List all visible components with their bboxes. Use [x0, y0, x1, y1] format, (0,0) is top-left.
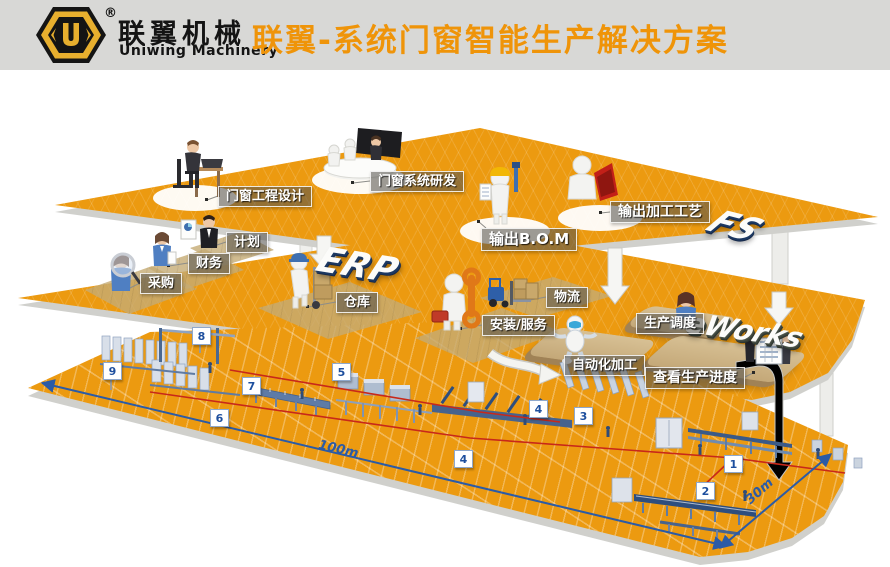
tag-installation-service: 安装/服务 [482, 315, 555, 336]
tag-window-system-rd: 门窗系统研发 [370, 171, 464, 192]
marker-4b: 4 [454, 450, 473, 468]
tag-planning: 计划 [226, 232, 268, 253]
marker-3: 3 [574, 407, 593, 425]
machine-cluster-machining-center [656, 412, 792, 458]
tag-output-bom: 输出B.O.M [481, 228, 577, 251]
registered-mark: ® [104, 6, 117, 21]
service-to-automation-arrow [490, 353, 561, 384]
marker-9: 9 [103, 362, 122, 380]
marker-1: 1 [724, 455, 743, 473]
tag-warehouse: 仓库 [336, 292, 378, 313]
tag-automated-processing: 自动化加工 [564, 355, 645, 376]
planning-figure [181, 215, 218, 248]
marker-6: 6 [210, 409, 229, 427]
marker-4a: 4 [529, 400, 548, 418]
marker-5: 5 [332, 363, 351, 381]
logistics-forklift-figure [488, 279, 538, 308]
tag-view-progress: 查看生产进度 [645, 367, 745, 389]
tag-logistics: 物流 [546, 287, 588, 308]
procurement-figure [111, 254, 141, 292]
tag-output-process: 输出加工工艺 [610, 201, 710, 223]
tag-procurement: 采购 [140, 273, 182, 294]
tag-finance: 财务 [188, 253, 230, 274]
solution-scene: FS ERP eWorks 门窗工程设计 门窗系统研发 输出B.O.M 输出加工… [0, 70, 890, 567]
page-title: 联翼-系统门窗智能生产解决方案 [252, 15, 729, 60]
header-bar: ® 联翼机械 Uniwing Machinery 联翼-系统门窗智能生产解决方案 [0, 0, 890, 70]
poster: ® 联翼机械 Uniwing Machinery 联翼-系统门窗智能生产解决方案 [0, 0, 890, 567]
tag-window-engineering-design: 门窗工程设计 [218, 186, 312, 207]
finance-figure [153, 232, 176, 266]
process-output-figure [568, 156, 618, 201]
machine-cluster-small-line [660, 522, 740, 539]
marker-7: 7 [242, 377, 261, 395]
uniwing-logo-icon [36, 6, 106, 64]
tag-production-scheduling: 生产调度 [636, 313, 704, 334]
marker-8: 8 [192, 327, 211, 345]
bom-hardhat-figure [480, 162, 520, 224]
service-figure [432, 270, 479, 330]
machine-cluster-bottom-conveyor [612, 478, 756, 525]
marker-2: 2 [696, 482, 715, 500]
